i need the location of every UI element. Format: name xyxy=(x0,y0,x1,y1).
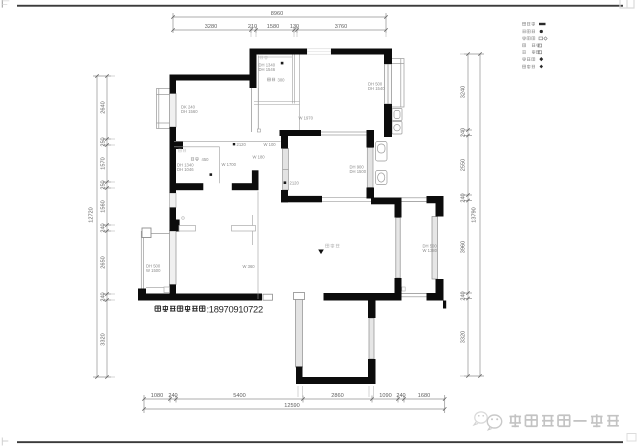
svg-text:3320: 3320 xyxy=(101,333,107,345)
svg-text:240: 240 xyxy=(101,223,107,232)
svg-text::18970910722: :18970910722 xyxy=(207,304,263,315)
svg-text:W 100: W 100 xyxy=(264,142,277,147)
svg-text:8960: 8960 xyxy=(271,11,283,17)
svg-text:2120: 2120 xyxy=(290,181,300,186)
svg-text:2640: 2640 xyxy=(101,101,107,113)
svg-text:250: 250 xyxy=(101,137,107,146)
svg-text:2550: 2550 xyxy=(461,159,467,171)
svg-text:210: 210 xyxy=(248,24,257,30)
svg-text:12720: 12720 xyxy=(89,207,95,223)
svg-text:3960: 3960 xyxy=(461,241,467,253)
svg-text:240: 240 xyxy=(168,393,177,399)
svg-text:W 1380: W 1380 xyxy=(423,248,438,253)
svg-text:1090: 1090 xyxy=(379,393,391,399)
svg-text:DH 1560: DH 1560 xyxy=(181,109,198,114)
svg-text:3320: 3320 xyxy=(461,331,467,343)
svg-text:1080: 1080 xyxy=(151,393,163,399)
svg-text:1580: 1580 xyxy=(267,24,279,30)
svg-text:1680: 1680 xyxy=(418,393,430,399)
svg-text:240: 240 xyxy=(101,292,107,301)
svg-text:1570: 1570 xyxy=(101,157,107,169)
svg-text:12590: 12590 xyxy=(284,403,300,409)
svg-text:2860: 2860 xyxy=(331,393,343,399)
svg-text:13790: 13790 xyxy=(472,207,478,223)
svg-text:3760: 3760 xyxy=(335,24,347,30)
svg-text:300: 300 xyxy=(278,78,286,83)
svg-text:DH 1546: DH 1546 xyxy=(259,67,276,72)
svg-text:450: 450 xyxy=(202,157,210,162)
svg-text:W 1500: W 1500 xyxy=(146,268,161,273)
svg-text:DH 1500: DH 1500 xyxy=(350,169,367,174)
svg-text:250: 250 xyxy=(101,180,107,189)
svg-text:3280: 3280 xyxy=(205,24,217,30)
svg-text:1560: 1560 xyxy=(101,200,107,212)
svg-text:W 1700: W 1700 xyxy=(222,162,237,167)
svg-text:DH 1046: DH 1046 xyxy=(177,167,194,172)
svg-text:W 180: W 180 xyxy=(253,155,266,160)
svg-text:3240: 3240 xyxy=(461,86,467,98)
svg-text:2650: 2650 xyxy=(101,256,107,268)
svg-text:W 360: W 360 xyxy=(243,264,256,269)
svg-text:130: 130 xyxy=(290,24,299,30)
svg-text:5400: 5400 xyxy=(233,393,245,399)
svg-text:240: 240 xyxy=(396,393,405,399)
svg-text:W 1970: W 1970 xyxy=(299,116,314,121)
svg-text:2120: 2120 xyxy=(237,142,247,147)
svg-text:DH 1540: DH 1540 xyxy=(368,86,385,91)
